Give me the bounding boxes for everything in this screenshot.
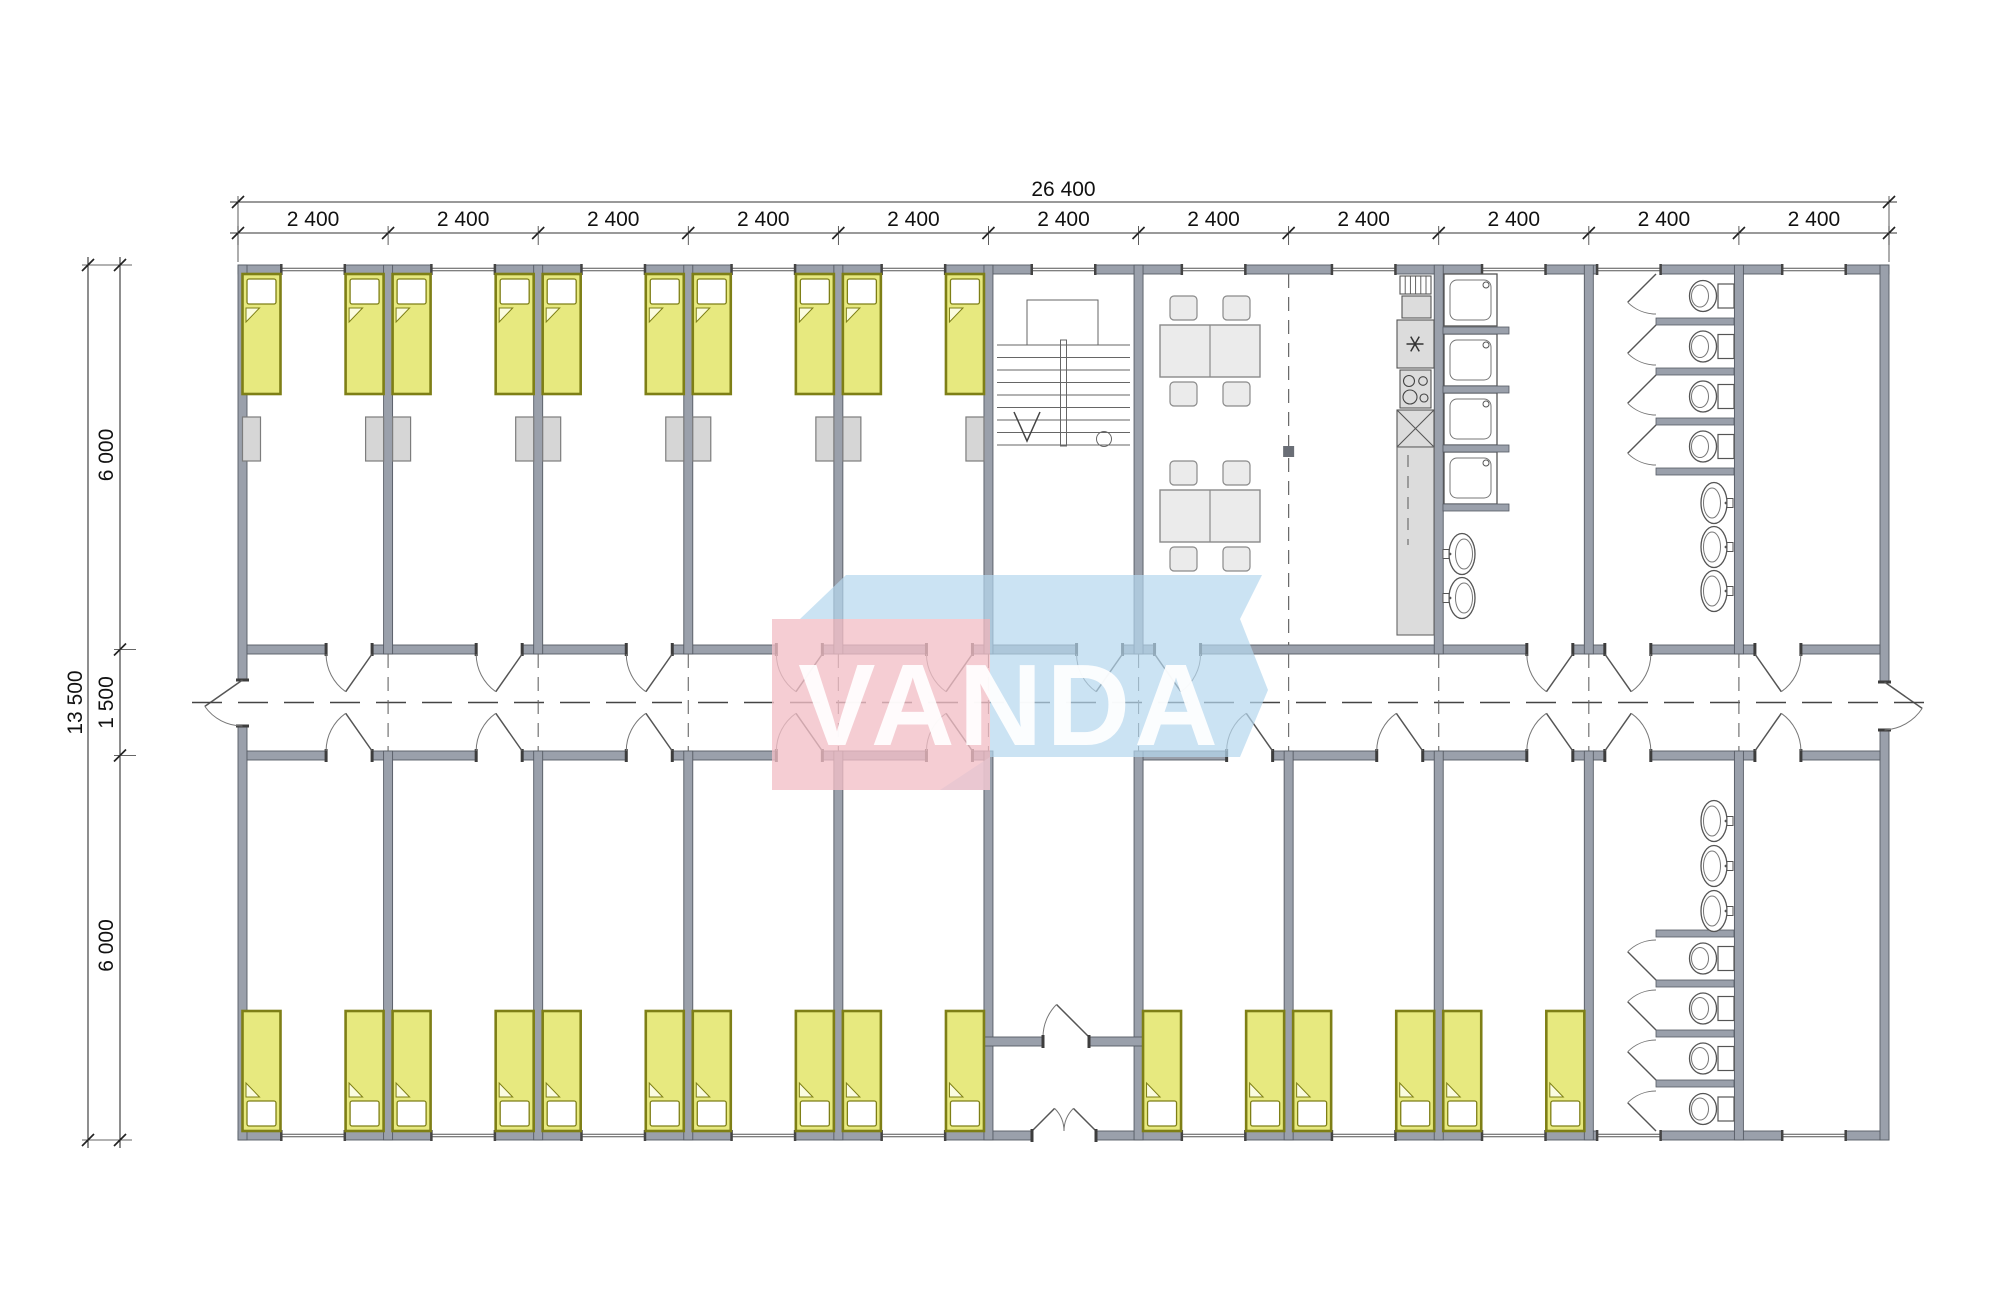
dimension-left-segment-1: 1 500 (95, 676, 118, 729)
room-bottom-toilets-9 (1628, 801, 1734, 1132)
bed (1443, 1011, 1481, 1131)
wardrobe (666, 417, 684, 461)
toilet (1690, 1043, 1735, 1074)
floor-plan-sheet: 26 4002 4002 4002 4002 4002 4002 4002 40… (0, 0, 2000, 1312)
bed (346, 1011, 384, 1131)
washbasin (1701, 891, 1733, 932)
bed (946, 1011, 984, 1131)
toilet (1690, 331, 1735, 362)
toilet (1690, 1094, 1735, 1125)
chair (1223, 296, 1250, 320)
washbasin (1701, 483, 1733, 524)
bed (693, 1011, 731, 1131)
room-top-staircase-5 (997, 300, 1130, 447)
wardrobe (693, 417, 711, 461)
dining-table (1160, 490, 1260, 542)
bed (946, 274, 984, 394)
shower-tray (1444, 334, 1497, 386)
chair (1223, 382, 1250, 406)
room-bottom-bedroom-4 (843, 1011, 984, 1131)
bed (693, 274, 731, 394)
room-bottom-bedroom-2 (543, 1011, 684, 1131)
toilet (1690, 993, 1735, 1024)
watermark-text: VANDA (798, 640, 1222, 770)
floor-plan-drawing: 26 4002 4002 4002 4002 4002 4002 4002 40… (0, 0, 2000, 1312)
washbasin (1701, 527, 1733, 568)
dimension-left-segment-0: 6 000 (95, 429, 118, 482)
dimension-module-2: 2 400 (587, 208, 640, 231)
room-bottom-bedroom-8 (1443, 1011, 1584, 1131)
room-top-bedroom-1 (393, 274, 534, 461)
bed (1246, 1011, 1284, 1131)
washbasin (1701, 571, 1733, 612)
dimension-module-3: 2 400 (737, 208, 790, 231)
toilet (1690, 431, 1735, 462)
wardrobe (393, 417, 411, 461)
dimension-module-10: 2 400 (1788, 208, 1841, 231)
bed (1396, 1011, 1434, 1131)
bed (646, 1011, 684, 1131)
dimension-module-9: 2 400 (1638, 208, 1691, 231)
bed (1143, 1011, 1181, 1131)
room-bottom-bedroom-7 (1293, 1011, 1434, 1131)
chair (1170, 296, 1197, 320)
wardrobe (966, 417, 984, 461)
washbasin (1443, 578, 1475, 619)
chair (1223, 547, 1250, 571)
dimension-module-8: 2 400 (1487, 208, 1540, 231)
dimension-module-6: 2 400 (1187, 208, 1240, 231)
bed (243, 1011, 281, 1131)
room-top-washroom-7 (1443, 274, 1509, 619)
room-bottom-bedroom-0 (243, 1011, 384, 1131)
toilet (1690, 943, 1735, 974)
dimension-total-width: 26 400 (1031, 178, 1095, 201)
bed (543, 274, 581, 394)
wardrobe (816, 417, 834, 461)
dimension-module-4: 2 400 (887, 208, 940, 231)
room-top-bedroom-0 (243, 274, 384, 461)
chair (1223, 461, 1250, 485)
room-top-bedroom-2 (543, 274, 684, 461)
entrance-vestibule (1032, 1005, 1096, 1142)
bed (796, 274, 834, 394)
bed (346, 274, 384, 394)
room-bottom-bedroom-3 (693, 1011, 834, 1131)
wardrobe (516, 417, 534, 461)
room-bottom-bedroom-1 (393, 1011, 534, 1131)
washbasin (1701, 846, 1733, 887)
bed (543, 1011, 581, 1131)
room-top-bedroom-3 (693, 274, 834, 461)
chair (1170, 382, 1197, 406)
wardrobe (843, 417, 861, 461)
chair (1170, 547, 1197, 571)
dimension-total-height: 13 500 (64, 670, 87, 734)
shower-tray (1444, 393, 1497, 445)
bed (393, 274, 431, 394)
bed (796, 1011, 834, 1131)
toilet (1690, 281, 1735, 312)
wardrobe (243, 417, 261, 461)
room-bottom-bedroom-6 (1143, 1011, 1284, 1131)
bed (243, 274, 281, 394)
bed (646, 274, 684, 394)
dimension-module-0: 2 400 (287, 208, 340, 231)
shower-tray (1444, 274, 1497, 326)
bed (1546, 1011, 1584, 1131)
dimension-module-5: 2 400 (1037, 208, 1090, 231)
bed (1293, 1011, 1331, 1131)
toilet (1690, 381, 1735, 412)
dimension-module-7: 2 400 (1337, 208, 1390, 231)
kitchen (1397, 276, 1434, 635)
chair (1170, 461, 1197, 485)
dimension-left-segment-2: 6 000 (95, 919, 118, 972)
bed (843, 1011, 881, 1131)
wardrobe (366, 417, 384, 461)
room-top-bedroom-4 (843, 274, 984, 461)
washbasin (1701, 801, 1733, 842)
bed (843, 274, 881, 394)
wardrobe (543, 417, 561, 461)
shower-tray (1444, 452, 1497, 504)
watermark: VANDA (772, 575, 1268, 790)
dimension-module-1: 2 400 (437, 208, 490, 231)
bed (496, 274, 534, 394)
room-top-toilets-8 (1628, 274, 1734, 612)
bed (393, 1011, 431, 1131)
dining-table (1160, 325, 1260, 377)
washbasin (1443, 534, 1475, 575)
bed (496, 1011, 534, 1131)
staircase (997, 300, 1130, 447)
